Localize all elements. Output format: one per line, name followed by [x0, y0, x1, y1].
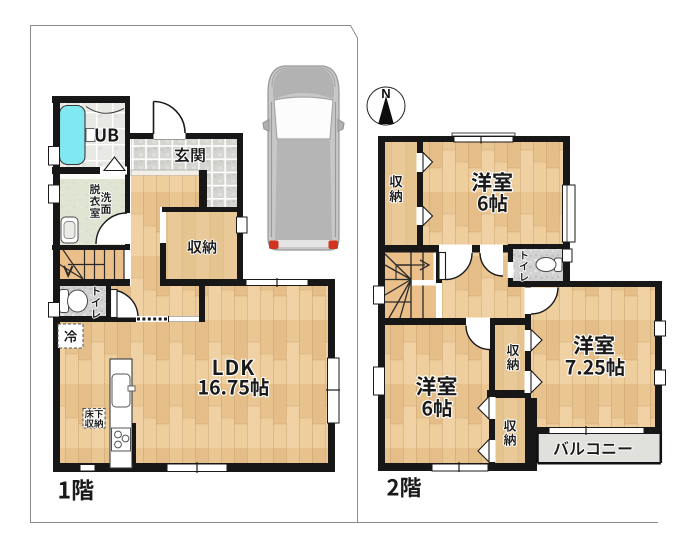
svg-text:N: N — [381, 86, 390, 101]
